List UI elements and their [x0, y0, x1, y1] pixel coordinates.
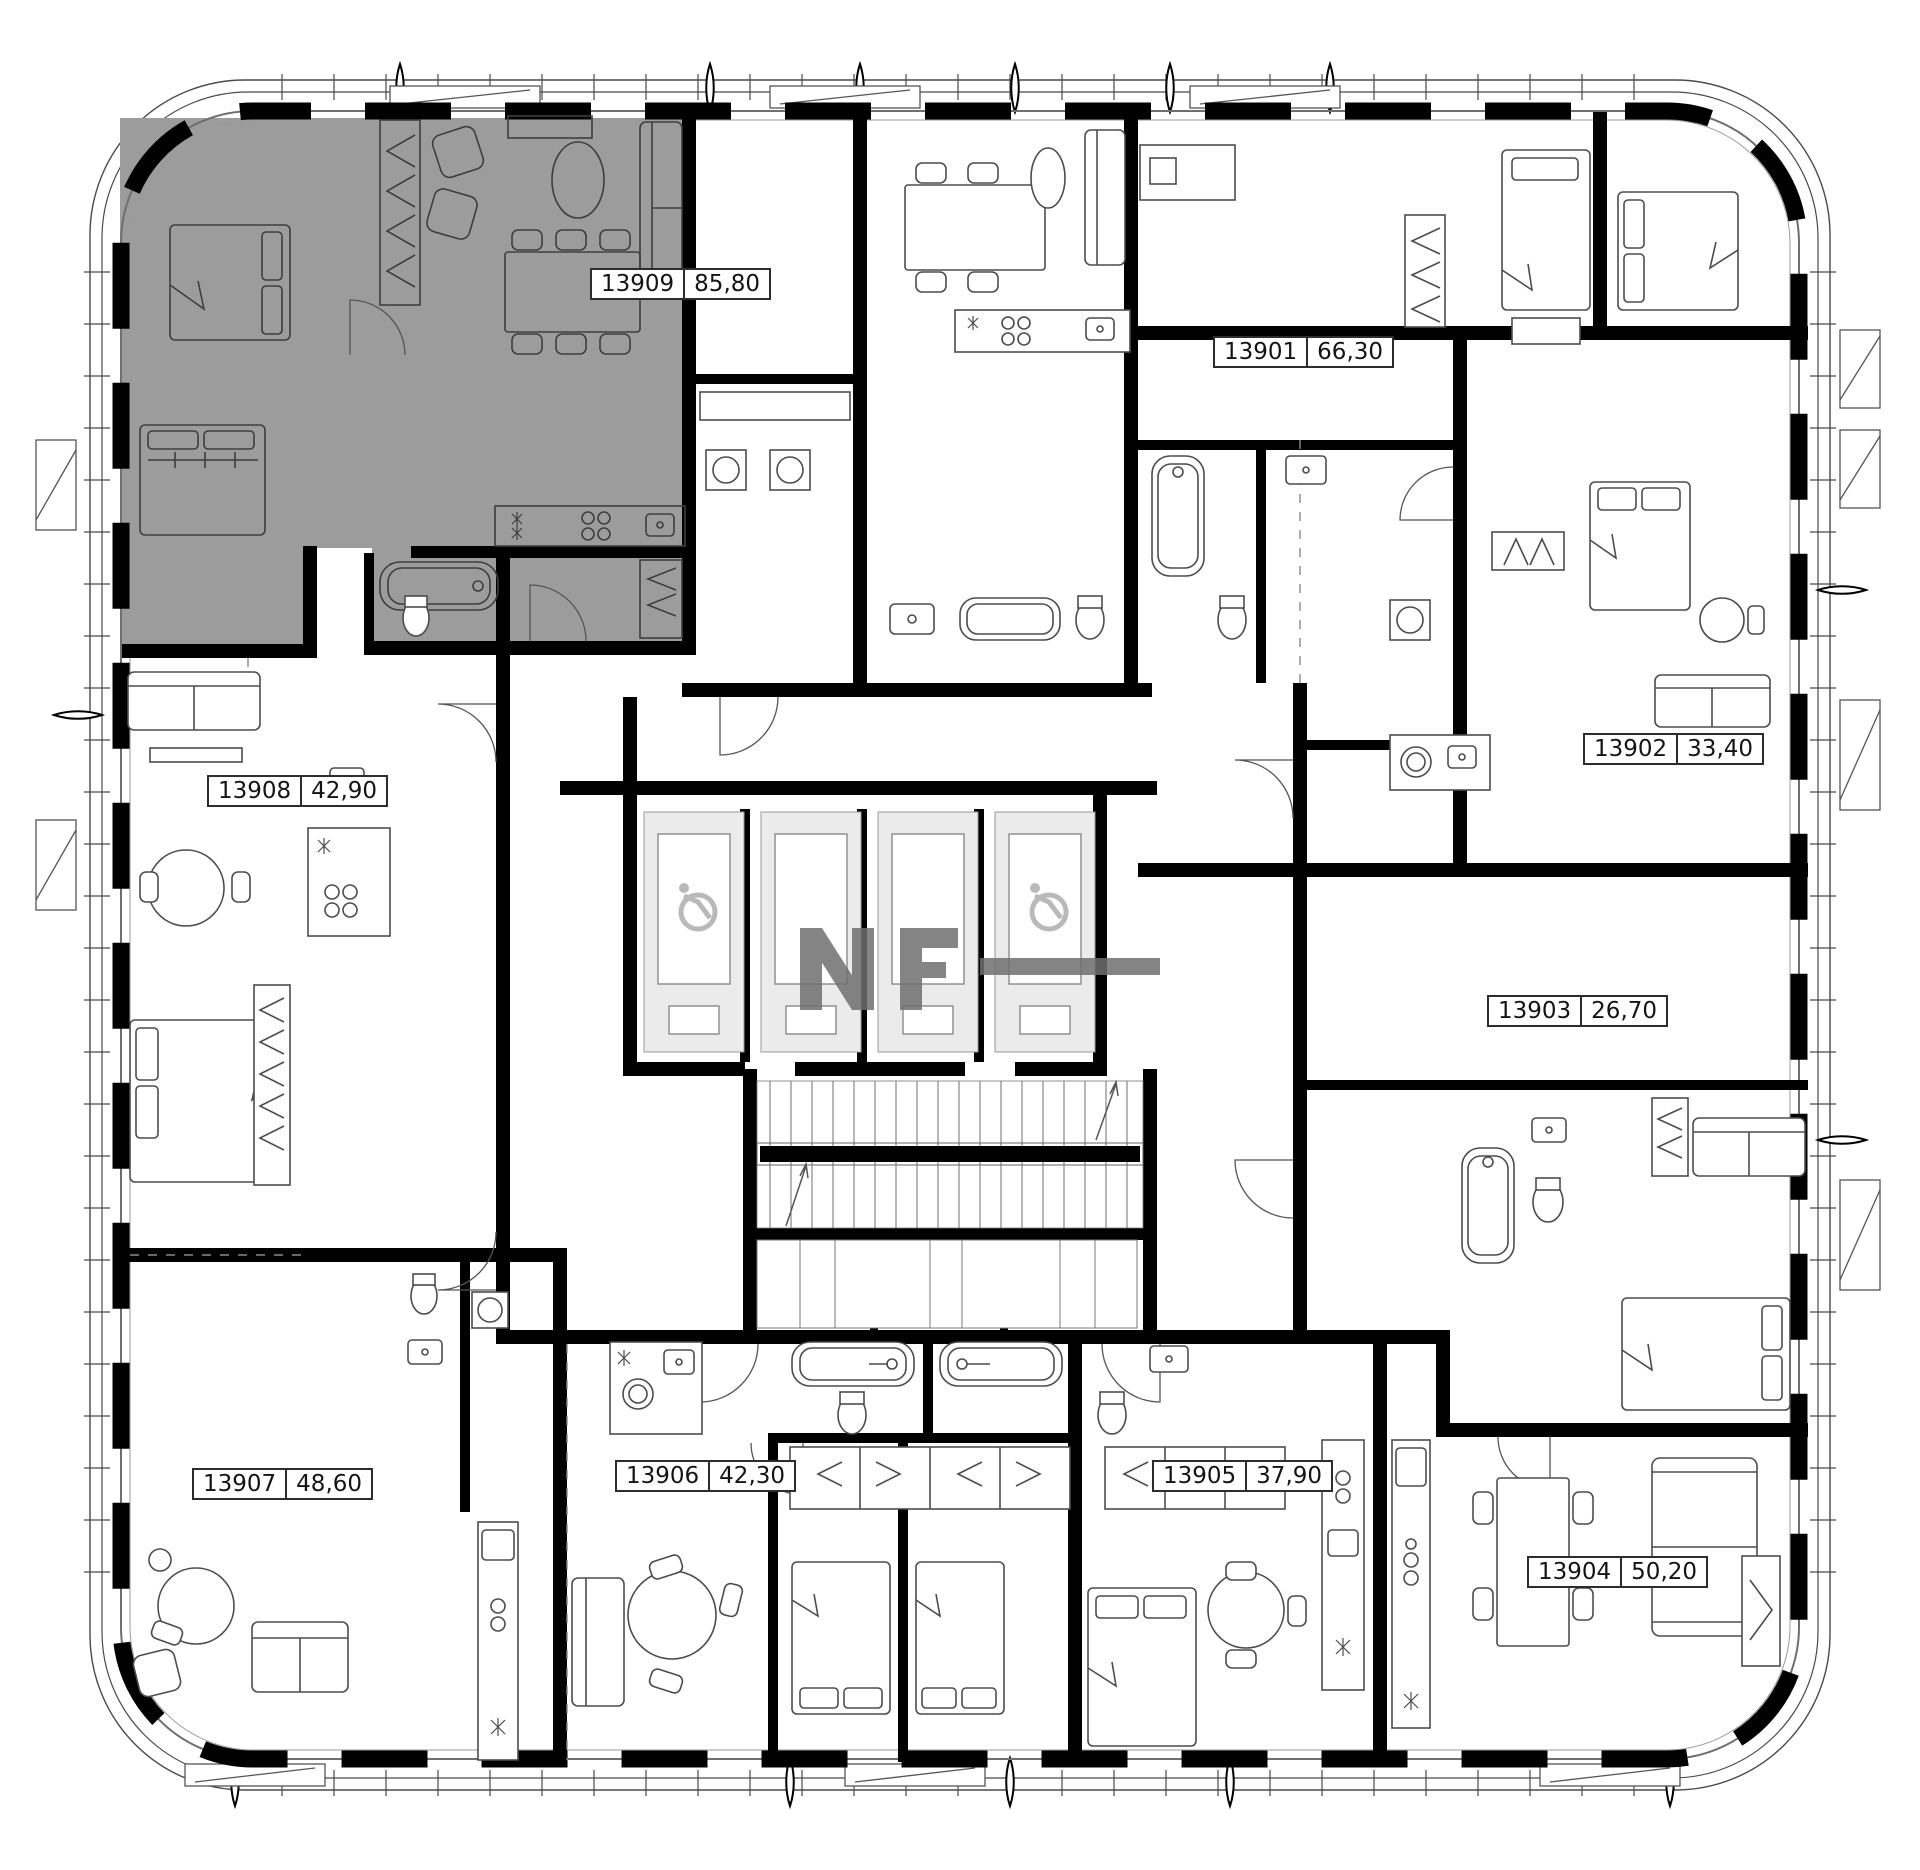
apartment-area: 42,90 — [302, 777, 386, 805]
toilet-icon — [403, 596, 429, 636]
toilet-icon — [838, 1392, 866, 1434]
apartment-number: 13905 — [1154, 1462, 1247, 1490]
bathtub-icon — [940, 1342, 1062, 1386]
sink-icon — [1286, 456, 1326, 484]
sink-icon — [1150, 1346, 1188, 1372]
toilet-icon — [1533, 1178, 1563, 1222]
apartment-number: 13906 — [617, 1462, 710, 1490]
selected-apartment-region[interactable] — [120, 118, 684, 646]
sink-icon — [408, 1340, 442, 1364]
bed-icon — [1622, 1298, 1790, 1410]
sink-icon — [1532, 1118, 1566, 1142]
furniture-13908 — [128, 596, 429, 1185]
table-icon — [1031, 148, 1065, 208]
kitchen-column-icon — [1392, 1440, 1430, 1728]
round-table-icon — [628, 1553, 744, 1694]
kitchen-column-icon — [478, 1522, 518, 1760]
toilet-icon — [1218, 596, 1246, 639]
bathtub-icon — [792, 1342, 914, 1386]
apartment-label-13907[interactable]: 13907 48,60 — [192, 1468, 373, 1500]
wardrobe-icon — [1492, 532, 1564, 570]
round-table-icon — [149, 1549, 234, 1647]
dining-table-icon — [905, 163, 1045, 292]
bath-cluster-13901 — [1152, 456, 1430, 640]
apartment-number: 13902 — [1585, 735, 1678, 763]
sink-icon — [890, 604, 934, 634]
apartment-label-13906[interactable]: 13906 42,30 — [615, 1460, 796, 1492]
wardrobe-icon — [1405, 215, 1445, 327]
round-table-icon — [1700, 598, 1764, 642]
staircase — [757, 1081, 1143, 1328]
wardrobe-icon — [790, 1447, 1070, 1509]
wardrobe-icon — [1652, 1098, 1688, 1176]
apartment-area: 42,30 — [710, 1462, 794, 1490]
apartment-number: 13907 — [194, 1470, 287, 1498]
bathtub-icon — [960, 598, 1060, 640]
toilet-icon — [1098, 1392, 1126, 1434]
utility-shafts — [757, 1240, 1137, 1328]
apartment-number: 13904 — [1529, 1558, 1622, 1586]
apartment-label-13908[interactable]: 13908 42,90 — [207, 775, 388, 807]
washer-icon — [472, 1292, 508, 1328]
apartment-number: 13901 — [1215, 338, 1308, 366]
bed-icon — [916, 1562, 1004, 1714]
bed-icon — [1502, 150, 1590, 344]
bed-icon — [1088, 1588, 1196, 1746]
armchair-icon — [132, 1648, 183, 1699]
sofa-icon — [128, 672, 260, 730]
apartment-area: 50,20 — [1622, 1558, 1706, 1586]
desk-icon — [1140, 145, 1235, 200]
apartment-area: 33,40 — [1678, 735, 1762, 763]
floorplan-drawing — [0, 0, 1920, 1870]
washer-icon — [706, 450, 746, 490]
round-table-icon — [1208, 1562, 1306, 1668]
apartment-area: 26,70 — [1582, 997, 1666, 1025]
utility-room-top — [700, 392, 1104, 640]
furniture-13906 — [572, 1342, 1070, 1714]
bed-icon — [1590, 482, 1690, 610]
sofa-icon — [1693, 1118, 1805, 1176]
furniture-13903 — [1462, 1098, 1805, 1410]
bed-icon — [1618, 192, 1738, 310]
apartment-area: 85,80 — [685, 270, 769, 298]
apartment-label-13902[interactable]: 13902 33,40 — [1583, 733, 1764, 765]
sofa-icon — [252, 1622, 348, 1692]
sofa-icon — [572, 1578, 624, 1706]
apartment-number: 13903 — [1489, 997, 1582, 1025]
apartment-number: 13909 — [592, 270, 685, 298]
washer-icon — [1390, 600, 1430, 640]
toilet-icon — [1076, 596, 1104, 639]
kitchen-counter-icon — [955, 310, 1130, 352]
washer-icon — [770, 450, 810, 490]
apartment-label-13909[interactable]: 13909 85,80 — [590, 268, 771, 300]
tv-console-icon — [1742, 1556, 1780, 1666]
bathtub-icon — [1152, 456, 1204, 576]
apartment-label-13903[interactable]: 13903 26,70 — [1487, 995, 1668, 1027]
kitchen-icon — [308, 828, 390, 936]
tv-console-icon — [150, 748, 242, 762]
round-table-icon — [140, 850, 250, 926]
apartment-area: 48,60 — [287, 1470, 371, 1498]
apartment-label-13901[interactable]: 13901 66,30 — [1213, 336, 1394, 368]
toilet-icon — [411, 1274, 437, 1314]
kitchen-icon — [1390, 735, 1490, 790]
sofa-icon — [1085, 130, 1125, 265]
bed-icon — [792, 1562, 890, 1714]
sofa-icon — [1655, 675, 1770, 727]
apartment-area: 37,90 — [1247, 1462, 1331, 1490]
wardrobe-icon — [254, 985, 290, 1185]
apartment-number: 13908 — [209, 777, 302, 805]
bathtub-icon — [1462, 1148, 1514, 1263]
apartment-label-13904[interactable]: 13904 50,20 — [1527, 1556, 1708, 1588]
apartment-label-13905[interactable]: 13905 37,90 — [1152, 1460, 1333, 1492]
furniture-13901 — [905, 130, 1738, 352]
kitchen-icon — [610, 1342, 702, 1434]
floorplan-page: 13901 66,30 13902 33,40 13903 26,70 1390… — [0, 0, 1920, 1870]
apartment-area: 66,30 — [1308, 338, 1392, 366]
